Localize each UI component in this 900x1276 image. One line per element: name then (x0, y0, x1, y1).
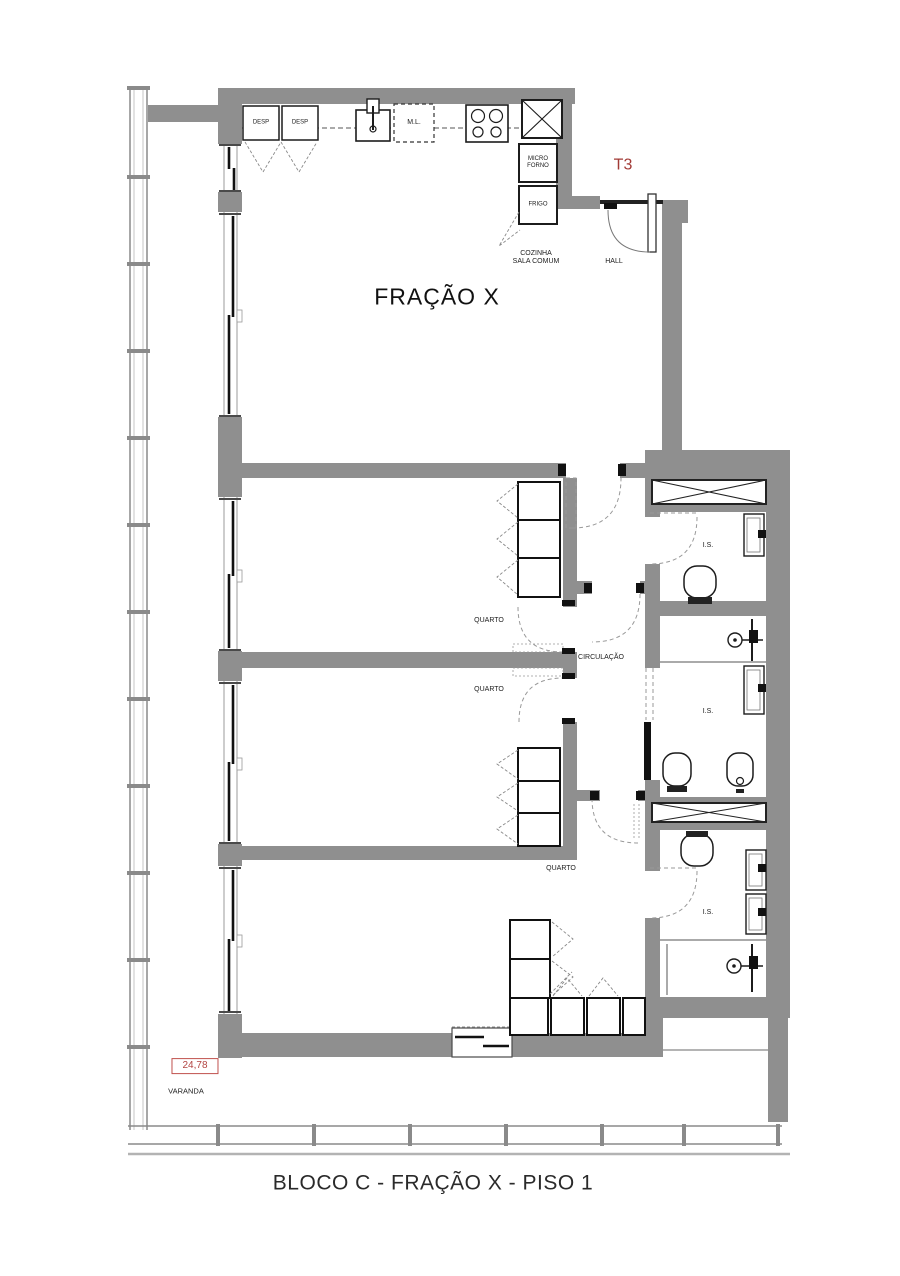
bottom-window (452, 1027, 514, 1057)
pantry-label-2: DESP (292, 119, 308, 126)
pocket-door-leaf (644, 722, 651, 780)
floorplan-page: DESP DESP M.L. MICRO FORNO FRIGO T3 COZI… (0, 0, 900, 1276)
floorplan-drawing (0, 0, 900, 1276)
room-label-bedroom-3: QUARTO (546, 865, 576, 873)
fraction-label: FRAÇÃO X (374, 283, 500, 310)
room-label-bathroom-1: I.S. (703, 542, 714, 550)
fridge-label: FRIGO (529, 201, 548, 208)
wardrobes-layer (510, 482, 645, 1035)
room-label-bedroom-1: QUARTO (474, 617, 504, 625)
kitchen-layer (242, 99, 562, 246)
shaft-x-box (522, 100, 562, 138)
bathroom-fixtures (660, 514, 766, 995)
room-label-bathroom-2: I.S. (703, 708, 714, 716)
balcony-area-value: 24,78 (171, 1058, 218, 1074)
left-balcony-railing (127, 86, 150, 1130)
windows-layer (219, 144, 514, 1057)
cooktop (466, 105, 508, 142)
room-label-circulation: CIRCULAÇÃO (578, 654, 624, 662)
dishwasher-label: M.L. (407, 119, 421, 127)
room-label-kitchen-living: COZINHA SALA COMUM (513, 250, 560, 267)
unit-type-badge: T3 (614, 157, 633, 176)
microwave-oven-label: MICRO FORNO (527, 156, 549, 170)
room-label-bedroom-2: QUARTO (474, 686, 504, 694)
sink (356, 99, 390, 141)
balcony-label: VARANDA (168, 1088, 204, 1097)
room-label-hall: HALL (605, 258, 623, 266)
walls-layer (148, 88, 790, 1122)
drawing-title: BLOCO C - FRAÇÃO X - PISO 1 (273, 1172, 593, 1197)
pantry-label-1: DESP (253, 119, 269, 126)
room-label-bathroom-3: I.S. (703, 909, 714, 917)
entry-door (600, 194, 663, 252)
entry-door-leaf (648, 194, 656, 252)
bathroom2-fixtures (660, 619, 766, 793)
bottom-balcony-railing (128, 1124, 790, 1154)
